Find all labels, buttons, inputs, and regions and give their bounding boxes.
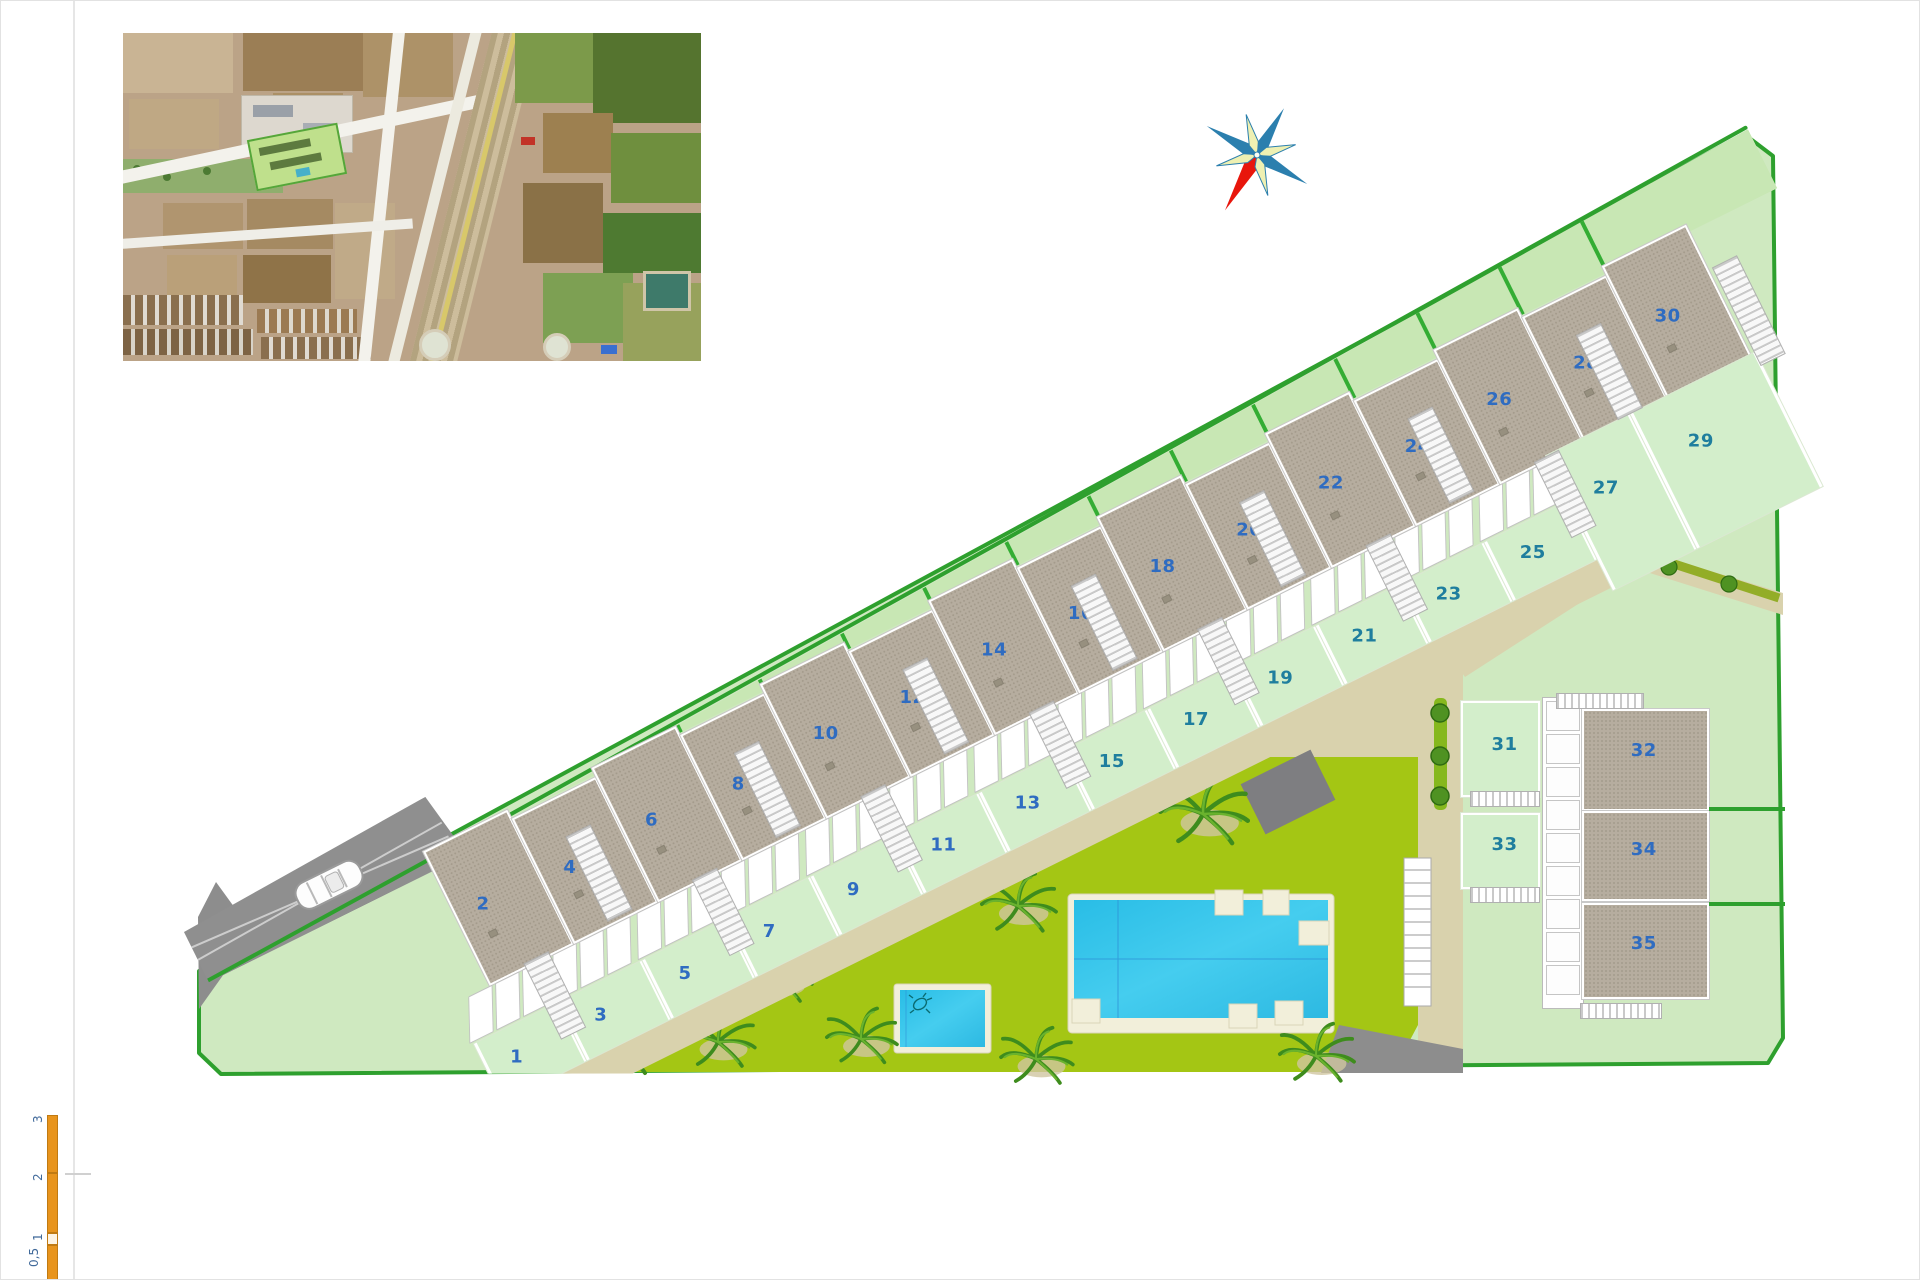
- plot-label: 1: [510, 1046, 523, 1067]
- plot-label: 26: [1486, 389, 1512, 410]
- plot-label: 18: [1149, 557, 1175, 578]
- plot-label: 22: [1318, 473, 1344, 494]
- plot-label: 17: [1183, 709, 1209, 730]
- compass-points: [1204, 105, 1310, 214]
- scale-label: 0,5: [27, 1249, 41, 1267]
- plot-label: 32: [1631, 740, 1657, 761]
- site-plan-page: 2143658710912111413161518172019222124232…: [0, 0, 1920, 1280]
- plot-garden: 31: [1461, 701, 1540, 797]
- aerial-photo-inset: [123, 33, 701, 361]
- stairs-hatch: [1580, 1003, 1662, 1019]
- plot-label: 19: [1267, 667, 1293, 688]
- plot-garden: 33: [1461, 813, 1540, 889]
- plot-label: 10: [812, 724, 838, 745]
- plot-label: 33: [1492, 834, 1518, 855]
- plot-label: 23: [1435, 583, 1461, 604]
- stairs-hatch: [1556, 693, 1644, 709]
- plot-label: 34: [1631, 839, 1657, 860]
- compass-rose-icon: [1181, 83, 1341, 233]
- plot-label: 29: [1688, 431, 1714, 452]
- plot-label: 30: [1654, 306, 1680, 327]
- stairs-hatch: [1470, 791, 1540, 807]
- boundary-divider: [1709, 807, 1785, 811]
- plot-label: 13: [1014, 792, 1040, 813]
- garden-divider: [981, 494, 1019, 566]
- plot-label: 6: [645, 810, 658, 831]
- plot-label: 3: [594, 1004, 607, 1025]
- plot-label: 4: [563, 857, 576, 878]
- plot-label: 25: [1519, 542, 1545, 563]
- garden-divider: [1402, 286, 1440, 358]
- ladder-strip: [1404, 858, 1431, 1006]
- plot-roof: 32: [1582, 709, 1709, 811]
- garden-divider: [1234, 369, 1272, 441]
- plot-roof: 34: [1582, 811, 1709, 901]
- boundary-divider: [1709, 902, 1785, 906]
- plot-roof: 35: [1582, 903, 1709, 999]
- plot-label: 11: [930, 834, 956, 855]
- scale-label: 3: [31, 1105, 45, 1123]
- cluster-terraces: [1542, 697, 1584, 1009]
- main-pool: [1068, 890, 1334, 1033]
- plot-label: 35: [1631, 933, 1657, 954]
- plot-label: 9: [847, 879, 860, 900]
- plot-label: 31: [1492, 734, 1518, 755]
- scale-label: 2: [31, 1163, 45, 1181]
- car-icon: [288, 852, 370, 917]
- frame-line-vertical: [73, 1, 75, 1280]
- plot-label: 14: [981, 640, 1007, 661]
- garden-divider: [813, 578, 851, 650]
- plot-label: 7: [762, 921, 775, 942]
- plot-label: 2: [476, 894, 489, 915]
- plot-label: 27: [1593, 478, 1619, 499]
- plot-label: 8: [731, 774, 744, 795]
- plot-label: 21: [1351, 625, 1377, 646]
- plot-label: 5: [678, 962, 691, 983]
- plot-label: 15: [1098, 750, 1124, 771]
- stairs-hatch: [1470, 887, 1540, 903]
- frame-tick: [65, 1173, 91, 1175]
- scale-label: 1: [31, 1223, 45, 1241]
- cluster-31-35: 31 33 32 34 35: [1456, 691, 1788, 1025]
